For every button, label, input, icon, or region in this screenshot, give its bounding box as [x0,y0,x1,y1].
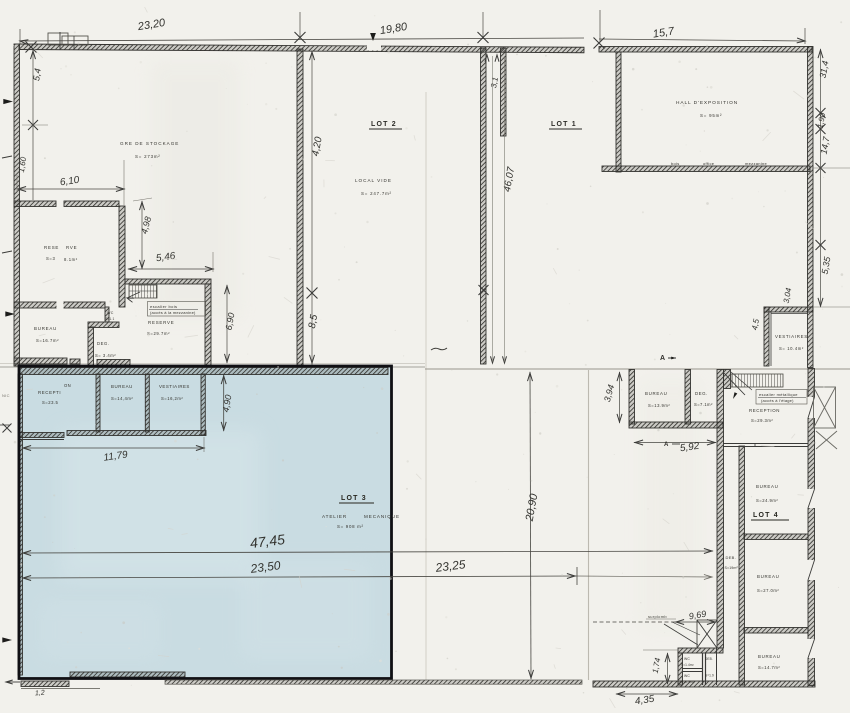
svg-text:S= 3.4m²: S= 3.4m² [95,353,116,358]
svg-text:ATELIER: ATELIER [322,514,347,519]
svg-text:bois: bois [671,161,680,166]
svg-text:S=19m²: S=19m² [725,566,739,570]
svg-text:S=16.7m²: S=16.7m² [36,338,59,343]
svg-text:S=29.3m²: S=29.3m² [751,418,773,423]
svg-text:S=14,4m²: S=14,4m² [111,396,133,401]
svg-text:(accès à l'étage): (accès à l'étage) [761,398,794,403]
svg-text:S=27.0m²: S=27.0m² [757,588,779,593]
svg-text:S=7.1m²: S=7.1m² [694,402,713,407]
svg-text:MECANIQUE: MECANIQUE [364,514,400,519]
svg-text:LOT 4: LOT 4 [753,512,779,519]
svg-text:LOT 1: LOT 1 [551,121,577,128]
svg-text:DEB.: DEB. [726,555,737,560]
svg-text:WC: WC [107,311,114,315]
svg-text:RVE: RVE [66,245,77,250]
svg-text:DEG.: DEG. [695,391,708,396]
svg-text:S=1.1: S=1.1 [105,317,114,321]
svg-text:S=24.9m²: S=24.9m² [756,498,778,503]
svg-text:WC: WC [684,657,690,661]
svg-text:LOCAL VIDE: LOCAL VIDE [355,178,392,183]
svg-text:S=16,2m²: S=16,2m² [161,396,183,401]
svg-text:S=29.7m²: S=29.7m² [147,331,170,336]
svg-text:BUREAU: BUREAU [111,384,133,389]
svg-text:LOT 2: LOT 2 [371,121,397,128]
svg-text:BUREAU: BUREAU [757,574,780,579]
svg-text:RESE: RESE [44,245,59,250]
svg-text:escalier bois: escalier bois [150,304,177,309]
svg-text:BUREAU: BUREAU [34,326,57,331]
svg-text:A: A [660,355,666,362]
svg-text:S= 273m²: S= 273m² [135,154,161,159]
svg-text:escalier métallique: escalier métallique [759,392,798,397]
svg-text:RECEPTION: RECEPTION [749,408,780,413]
svg-text:S= 95m²: S= 95m² [700,113,722,118]
svg-text:ON: ON [64,383,71,388]
svg-text:DEB.: DEB. [705,657,713,661]
svg-text:VESTIAIRES: VESTIAIRES [775,334,808,339]
svg-text:S=14.7m²: S=14.7m² [758,665,780,670]
svg-text:S=1.9: S=1.9 [705,674,714,678]
svg-text:8.1m²: 8.1m² [64,257,78,262]
svg-text:S=1.4m²: S=1.4m² [681,663,694,667]
svg-text:3,1: 3,1 [489,76,500,89]
svg-text:BUREAU: BUREAU [758,654,781,659]
svg-text:BUREAU: BUREAU [756,484,779,489]
svg-text:S=1.3m²: S=1.3m² [681,680,694,684]
svg-text:RESERVE: RESERVE [148,320,175,325]
svg-text:BUREAU: BUREAU [645,391,668,396]
svg-text:RECEPTI: RECEPTI [38,390,61,395]
svg-text:(accès à la mezzanine): (accès à la mezzanine) [150,310,196,315]
svg-text:S=13.9m²: S=13.9m² [648,403,670,408]
svg-text:GRE DE STOCKAGE: GRE DE STOCKAGE [120,141,179,146]
svg-text:S= 247.7m²: S= 247.7m² [361,191,392,196]
svg-text:WC: WC [684,674,690,678]
svg-text:DEG.: DEG. [97,341,110,346]
svg-text:office: office [703,161,715,166]
svg-text:5,4: 5,4 [31,68,43,82]
svg-text:surplomb: surplomb [648,614,667,619]
svg-text:mezzanine: mezzanine [745,161,768,166]
svg-text:S= 908 m²: S= 908 m² [337,524,364,529]
svg-text:S=3: S=3 [46,256,55,261]
svg-text:A: A [664,442,669,448]
svg-text:S=23.5: S=23.5 [42,400,59,405]
svg-text:S= 10.4m²: S= 10.4m² [779,346,804,351]
svg-text:LOT 3: LOT 3 [341,495,367,502]
svg-text:VESTIAIRES: VESTIAIRES [159,384,190,389]
svg-text:1,2: 1,2 [35,690,45,698]
svg-text:NIC: NIC [2,393,10,398]
svg-text:HALL D'EXPOSITION: HALL D'EXPOSITION [676,100,738,106]
